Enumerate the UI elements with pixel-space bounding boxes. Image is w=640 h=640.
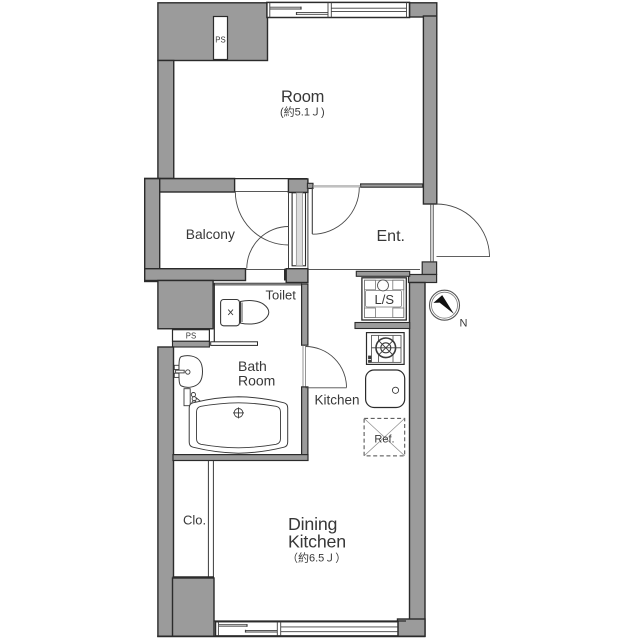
svg-text:Clo.: Clo. (183, 513, 206, 528)
svg-text:Balcony: Balcony (186, 227, 235, 242)
svg-text:Room: Room (238, 373, 275, 389)
svg-text:Ref.: Ref. (374, 434, 394, 446)
svg-text:Kitchen: Kitchen (288, 532, 346, 552)
svg-text:(約5.1Ｊ): (約5.1Ｊ) (280, 104, 325, 118)
svg-text:PS: PS (215, 36, 225, 45)
svg-text:Ent.: Ent. (377, 228, 405, 245)
svg-text:N: N (460, 318, 468, 330)
svg-text:L/S: L/S (375, 292, 395, 307)
svg-text:Kitchen: Kitchen (315, 393, 360, 408)
svg-text:Bath: Bath (238, 358, 267, 374)
svg-text:（約6.5Ｊ）: （約6.5Ｊ） (287, 551, 346, 565)
svg-text:Room: Room (281, 88, 324, 106)
svg-text:Toilet: Toilet (266, 288, 297, 303)
svg-text:PS: PS (186, 332, 196, 341)
